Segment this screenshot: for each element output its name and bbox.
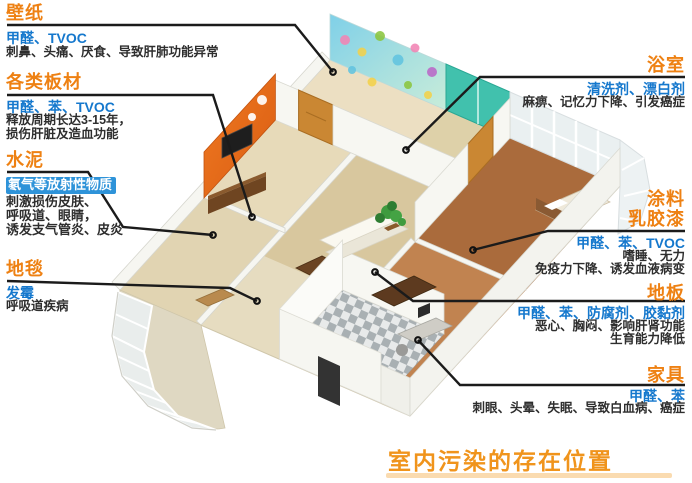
- callout-effects-bathroom: 麻痹、记忆力下降、引发癌症: [522, 96, 685, 110]
- callout-effects-furniture: 刺眼、头晕、失眠、导致白血病、癌症: [472, 402, 685, 416]
- callout-title-floorboard: 地板: [647, 284, 685, 304]
- callout-title-paint: 涂料: [647, 190, 685, 210]
- callout-title-carpet: 地毯: [6, 260, 44, 280]
- callout-effects-boards-1: 释放周期长达3-15年，: [6, 114, 131, 128]
- callout-title-cement: 水泥: [6, 151, 44, 171]
- callout-title-wallpaper: 壁纸: [6, 4, 44, 24]
- desk-chair: [396, 344, 408, 356]
- callout-effects-boards-2: 损伤肝脏及造血功能: [6, 128, 119, 142]
- page-title: 室内污染的存在位置: [388, 442, 613, 476]
- callout-title-paint-2: 乳胶漆: [628, 210, 685, 230]
- infographic-canvas: 壁纸 甲醛、TVOC 刺鼻、头痛、厌食、导致肝肺功能异常 各类板材 甲醛、苯、T…: [0, 0, 692, 483]
- callout-pollutants-cement: 氡气等放射性物质: [6, 177, 116, 194]
- callout-title-boards: 各类板材: [6, 73, 82, 93]
- callout-effects-carpet: 呼吸道疾病: [6, 300, 69, 314]
- callout-effects-paint-2: 免疫力下降、诱发血液病变: [535, 263, 685, 277]
- callout-title-bathroom: 浴室: [647, 56, 685, 76]
- callout-effects-floorboard-2: 生育能力降低: [610, 333, 685, 347]
- callout-title-furniture: 家具: [647, 366, 685, 386]
- callout-effects-wallpaper: 刺鼻、头痛、厌食、导致肝肺功能异常: [6, 46, 219, 60]
- callout-effects-cement-3: 诱发支气管炎、皮炎: [6, 223, 123, 237]
